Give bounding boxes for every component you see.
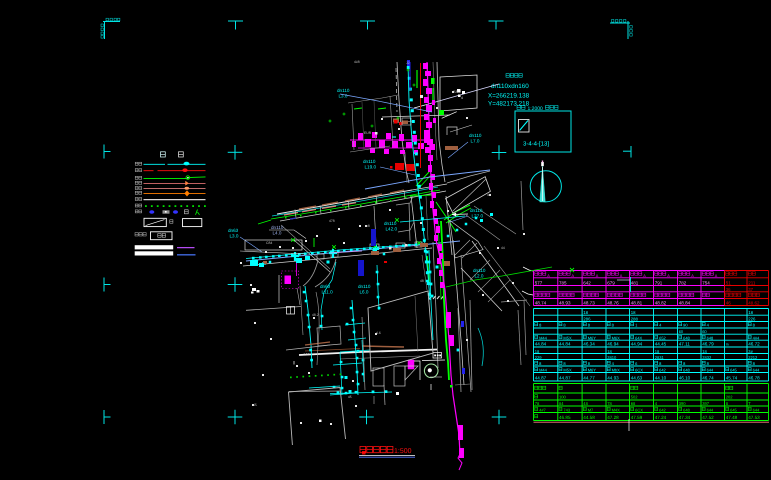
svg-text:M7: M7 bbox=[588, 407, 594, 412]
svg-text:45: 45 bbox=[348, 395, 352, 399]
svg-text:dn110xdn160: dn110xdn160 bbox=[491, 83, 529, 90]
svg-text:478: 478 bbox=[329, 219, 335, 223]
svg-text:791: 791 bbox=[655, 280, 663, 285]
svg-text:3-4-4-[13]: 3-4-4-[13] bbox=[523, 141, 549, 148]
svg-text:48: 48 bbox=[583, 401, 588, 406]
svg-text:645: 645 bbox=[730, 407, 737, 412]
svg-text:679: 679 bbox=[607, 280, 615, 285]
svg-text:502: 502 bbox=[631, 395, 639, 400]
svg-text:48.84: 48.84 bbox=[679, 300, 691, 305]
svg-text:44.77: 44.77 bbox=[583, 376, 595, 381]
svg-text:1:2000: 1:2000 bbox=[528, 106, 544, 112]
svg-text:397: 397 bbox=[702, 401, 710, 406]
svg-text:47.52: 47.52 bbox=[702, 415, 714, 420]
svg-text:46.72: 46.72 bbox=[748, 342, 760, 347]
svg-text:4#: 4# bbox=[487, 193, 491, 197]
svg-text:645: 645 bbox=[730, 368, 737, 373]
svg-text:dn110: dn110 bbox=[271, 225, 284, 230]
svg-text:44.93: 44.93 bbox=[607, 376, 619, 381]
svg-text:44.58: 44.58 bbox=[583, 415, 595, 420]
svg-text:M4X: M4X bbox=[612, 407, 621, 412]
svg-text:644: 644 bbox=[753, 368, 760, 373]
svg-text:Y=482173.218: Y=482173.218 bbox=[488, 101, 530, 108]
svg-text:458: 458 bbox=[452, 90, 458, 94]
svg-text:EUR: EUR bbox=[364, 131, 372, 135]
svg-text:44.87: 44.87 bbox=[535, 376, 547, 381]
svg-text:48.76: 48.76 bbox=[607, 300, 619, 305]
svg-text:47.53: 47.53 bbox=[748, 415, 760, 420]
svg-text:44.63: 44.63 bbox=[631, 376, 643, 381]
svg-text:60: 60 bbox=[679, 329, 684, 334]
svg-text:L19.0: L19.0 bbox=[365, 165, 377, 170]
svg-text:L7.0: L7.0 bbox=[471, 139, 480, 144]
svg-text:48.93: 48.93 bbox=[559, 300, 571, 305]
svg-text:47.11: 47.11 bbox=[679, 342, 691, 347]
svg-text:642: 642 bbox=[659, 407, 666, 412]
svg-text:M6Y: M6Y bbox=[588, 335, 597, 340]
svg-text:M6X: M6X bbox=[612, 335, 621, 340]
svg-text:48.81: 48.81 bbox=[631, 300, 643, 305]
svg-text:m: m bbox=[726, 343, 729, 347]
svg-text:644: 644 bbox=[707, 368, 714, 373]
svg-text:dn63: dn63 bbox=[320, 284, 331, 289]
svg-text:dn110: dn110 bbox=[470, 208, 483, 213]
svg-text:78: 78 bbox=[607, 401, 612, 406]
svg-text:M44: M44 bbox=[539, 368, 548, 373]
svg-text:L42.0: L42.0 bbox=[386, 227, 398, 232]
svg-text:754: 754 bbox=[702, 280, 710, 285]
svg-text:M5X: M5X bbox=[563, 368, 572, 373]
svg-text:2810: 2810 bbox=[607, 355, 617, 360]
svg-text:18: 18 bbox=[702, 349, 707, 354]
svg-text:M44: M44 bbox=[539, 335, 548, 340]
svg-text:100: 100 bbox=[559, 395, 567, 400]
svg-text:L6.0: L6.0 bbox=[360, 290, 369, 295]
svg-text:743: 743 bbox=[563, 407, 570, 412]
svg-text:J-M: J-M bbox=[303, 353, 309, 357]
svg-text:18: 18 bbox=[535, 349, 540, 354]
svg-text:44.45: 44.45 bbox=[655, 342, 667, 347]
svg-text:44.84: 44.84 bbox=[559, 342, 571, 347]
svg-text:44.10: 44.10 bbox=[655, 376, 667, 381]
svg-text:390: 390 bbox=[679, 401, 687, 406]
svg-text:48.2: 48.2 bbox=[312, 313, 319, 317]
svg-text:J2: J2 bbox=[406, 61, 410, 65]
svg-text:78: 78 bbox=[535, 401, 540, 406]
svg-text:4#4: 4#4 bbox=[753, 335, 760, 340]
svg-text:18: 18 bbox=[631, 310, 636, 315]
svg-text:MbX: MbX bbox=[612, 368, 621, 373]
svg-text:48.62: 48.62 bbox=[748, 300, 760, 305]
svg-text:44.94: 44.94 bbox=[631, 342, 643, 347]
svg-text:68: 68 bbox=[631, 401, 636, 406]
svg-text:47.59: 47.59 bbox=[631, 415, 643, 420]
svg-text:A: A bbox=[596, 274, 599, 278]
svg-text:48.73: 48.73 bbox=[583, 300, 595, 305]
svg-text:1:500: 1:500 bbox=[394, 448, 412, 455]
svg-text:652: 652 bbox=[659, 335, 666, 340]
svg-text:37: 37 bbox=[748, 287, 753, 292]
svg-text:226: 226 bbox=[748, 317, 756, 322]
svg-text:46.74: 46.74 bbox=[702, 376, 714, 381]
svg-text:46.34: 46.34 bbox=[583, 342, 595, 347]
svg-text:47.24: 47.24 bbox=[655, 415, 667, 420]
svg-text:dn63: dn63 bbox=[228, 228, 239, 233]
svg-text:46.94: 46.94 bbox=[607, 342, 619, 347]
svg-text:45: 45 bbox=[253, 403, 257, 407]
svg-text:18: 18 bbox=[655, 349, 660, 354]
svg-text:dn110: dn110 bbox=[469, 133, 482, 138]
svg-text:202: 202 bbox=[726, 395, 734, 400]
svg-text:2212: 2212 bbox=[748, 355, 758, 360]
svg-text:36: 36 bbox=[726, 287, 731, 292]
svg-text:577: 577 bbox=[535, 280, 543, 285]
svg-text:648: 648 bbox=[683, 335, 690, 340]
svg-text:46.79: 46.79 bbox=[702, 342, 714, 347]
svg-text:4: 4 bbox=[461, 96, 463, 100]
svg-text:47.34: 47.34 bbox=[679, 415, 691, 420]
svg-text:46.78: 46.78 bbox=[748, 376, 760, 381]
svg-text:L3.0: L3.0 bbox=[230, 234, 239, 239]
svg-text:dn110: dn110 bbox=[337, 88, 350, 93]
svg-text:47.48: 47.48 bbox=[726, 415, 738, 420]
svg-text:4.6: 4.6 bbox=[376, 331, 381, 335]
svg-text:642: 642 bbox=[583, 280, 591, 285]
svg-text:L11.0: L11.0 bbox=[322, 290, 334, 295]
svg-text:229: 229 bbox=[535, 355, 543, 360]
svg-text:L4.0: L4.0 bbox=[273, 231, 282, 236]
svg-text:6CX: 6CX bbox=[635, 407, 643, 412]
svg-text:2831: 2831 bbox=[655, 355, 665, 360]
svg-text:dn110: dn110 bbox=[363, 159, 376, 164]
svg-text:47.28: 47.28 bbox=[607, 415, 619, 420]
svg-text:782: 782 bbox=[679, 280, 687, 285]
svg-text:60: 60 bbox=[702, 329, 707, 334]
svg-text:C84: C84 bbox=[266, 241, 272, 245]
svg-text:4#7: 4#7 bbox=[539, 407, 546, 412]
svg-text:44: 44 bbox=[501, 246, 505, 250]
svg-text:64X: 64X bbox=[635, 335, 642, 340]
svg-text:48.74: 48.74 bbox=[535, 300, 547, 305]
svg-text:2#: 2# bbox=[748, 349, 753, 354]
svg-text:dn110: dn110 bbox=[384, 221, 397, 226]
svg-text:4#8: 4#8 bbox=[354, 60, 360, 64]
svg-text:644: 644 bbox=[707, 407, 714, 412]
svg-text:46.10: 46.10 bbox=[679, 376, 691, 381]
svg-text:m8: m8 bbox=[365, 224, 370, 228]
svg-text:51: 51 bbox=[726, 280, 732, 285]
svg-text:L27.0: L27.0 bbox=[472, 214, 484, 219]
svg-text:L2.0: L2.0 bbox=[475, 274, 484, 279]
svg-text:44.84: 44.84 bbox=[535, 342, 547, 347]
svg-text:48: 48 bbox=[420, 279, 424, 283]
svg-text:2832: 2832 bbox=[702, 355, 712, 360]
svg-text:18: 18 bbox=[583, 310, 588, 315]
svg-text:M6Y: M6Y bbox=[588, 368, 597, 373]
svg-text:211: 211 bbox=[748, 280, 756, 285]
svg-text:286: 286 bbox=[583, 317, 591, 322]
svg-text:M5X: M5X bbox=[563, 335, 572, 340]
svg-text:90: 90 bbox=[683, 323, 688, 328]
svg-text:6CX: 6CX bbox=[635, 368, 643, 373]
svg-text:648: 648 bbox=[683, 407, 690, 412]
svg-text:288: 288 bbox=[631, 317, 639, 322]
svg-text:dn110: dn110 bbox=[473, 268, 486, 273]
svg-text:785: 785 bbox=[559, 280, 567, 285]
svg-text:dn110: dn110 bbox=[358, 284, 371, 289]
svg-text:644: 644 bbox=[753, 407, 760, 412]
svg-text:481: 481 bbox=[631, 280, 639, 285]
svg-text:18: 18 bbox=[607, 349, 612, 354]
svg-text:48.82: 48.82 bbox=[655, 300, 667, 305]
svg-text:648: 648 bbox=[707, 335, 714, 340]
svg-text:46: 46 bbox=[726, 300, 732, 305]
svg-text:648: 648 bbox=[683, 368, 690, 373]
svg-text:44.87: 44.87 bbox=[559, 376, 571, 381]
svg-text:45.74: 45.74 bbox=[726, 376, 738, 381]
svg-text:46.85: 46.85 bbox=[559, 415, 571, 420]
svg-text:X=266219.138: X=266219.138 bbox=[488, 93, 530, 100]
svg-text:18: 18 bbox=[748, 310, 753, 315]
svg-text:84: 84 bbox=[559, 401, 564, 406]
svg-text:642: 642 bbox=[659, 368, 666, 373]
